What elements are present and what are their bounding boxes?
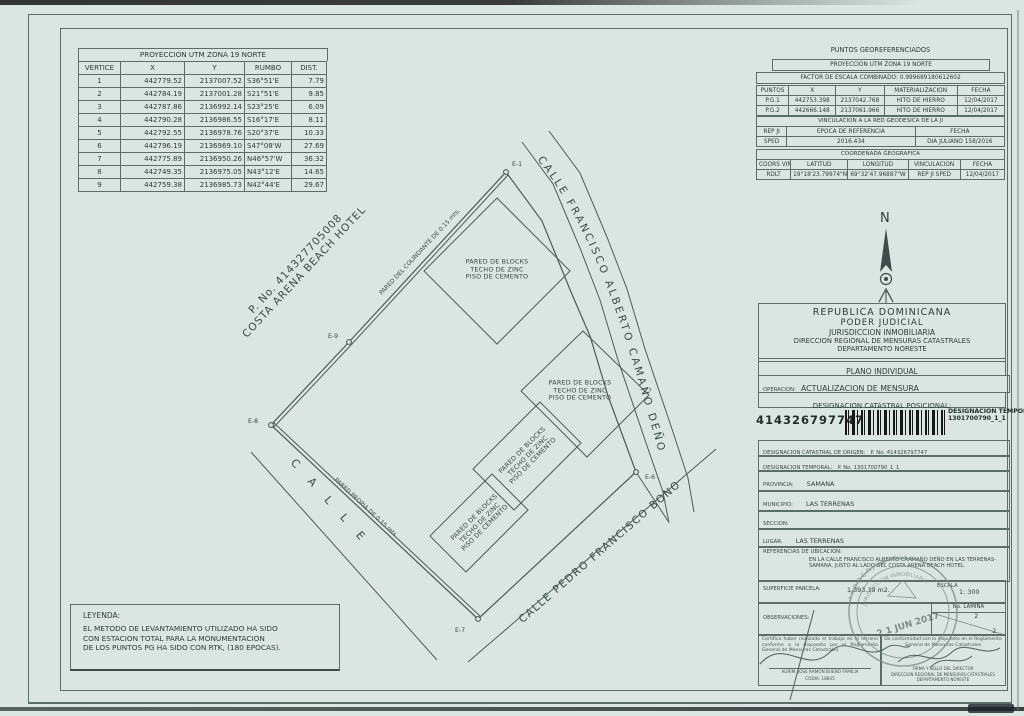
table-cell: 2136950.26 xyxy=(185,153,245,166)
geo-points-table: PUNTOSXYMATERIALIZACIONFECHA P.G.1442753… xyxy=(756,85,1005,116)
header-line-5: DEPARTAMENTO NORESTE xyxy=(759,345,1005,353)
table-cell: 10.33 xyxy=(292,127,327,140)
observaciones-label: OBSERVACIONES: xyxy=(763,615,810,621)
header-line-1: REPUBLICA DOMINICANA xyxy=(759,307,1005,318)
geo-subtitle: PROYECCION UTM ZONA 19 NORTE xyxy=(772,59,990,71)
referencias-value: EN LA CALLE FRANCISCO ALBERTO CAAMAÑO DE… xyxy=(809,557,1003,570)
temporal-designation-block: DESIGNACION TEMPORAL 1301700790_1_1 xyxy=(948,408,1018,422)
provincia-value: SAMANA xyxy=(807,480,835,488)
cert-right-box: De conformidad con lo dispuesto en el Re… xyxy=(880,634,1006,686)
superficie-label: SUPERFICIE PARCELA: xyxy=(763,586,821,592)
table-cell: 442792.55 xyxy=(121,127,185,140)
table-cell: 442790.28 xyxy=(121,114,185,127)
lugar-value: LAS TERRENAS xyxy=(796,537,844,545)
table-cell: 5 xyxy=(79,127,121,140)
utm-vertex-table: VERTICEXYRUMBODIST. 1442779.522137007.52… xyxy=(78,61,327,192)
table-cell: 2136986.55 xyxy=(185,114,245,127)
table-cell: P.G.1 xyxy=(757,96,789,106)
table-cell: 442759.38 xyxy=(121,179,185,192)
column-header: LONGITUD xyxy=(848,160,908,170)
cert-right-line3: DEPARTAMENTO NORESTE xyxy=(881,677,1005,683)
scanned-survey-plan: PROYECCION UTM ZONA 19 NORTE VERTICEXYRU… xyxy=(0,0,1024,716)
utm-header-row: VERTICEXYRUMBODIST. xyxy=(79,62,327,75)
table-cell: 2137042.768 xyxy=(836,96,884,106)
cert-left-name: AGRIM. JOSE RAMON BUENO FAMILIA xyxy=(769,668,871,675)
table-cell: 7.79 xyxy=(292,75,327,88)
lamina-diagonal: 2 2 xyxy=(932,613,1005,635)
column-header: COORS VINCULADA xyxy=(757,160,791,170)
table-cell: N42°44'E xyxy=(245,179,292,192)
scan-edge-bottom xyxy=(0,707,1024,711)
building-label-2: PARED DE BLOCKS TECHO DE ZINC PISO DE CE… xyxy=(549,380,612,403)
legend-box: LEYENDA: EL METODO DE LEVANTAMIENTO UTIL… xyxy=(70,604,340,671)
cert-right-text: De conformidad con lo dispuesto en el Re… xyxy=(881,635,1005,648)
geo-vinc-header-row: REP JIEPOCA DE REFERENCIAFECHA xyxy=(757,127,1005,137)
table-cell: S16°17'E xyxy=(245,114,292,127)
table-cell: S23°25'E xyxy=(245,101,292,114)
table-cell: 12/04/2017 xyxy=(957,96,1004,106)
seccion-label: SECCION: xyxy=(763,521,789,527)
table-cell: 3 xyxy=(79,101,121,114)
referencias-label: REFERENCIAS DE UBICACION: xyxy=(763,549,1009,555)
column-header: Y xyxy=(836,86,884,96)
table-cell: 442749.35 xyxy=(121,166,185,179)
geo-coord-header-row: COORS VINCULADALATITUDLONGITUDVINCULACIO… xyxy=(757,160,1005,170)
table-cell: 12/04/2017 xyxy=(960,170,1004,180)
table-row: P.G.2442666.1482137061.966HITO DE HIERRO… xyxy=(757,106,1005,116)
table-row: 9442759.382136985.73N42°44'E29.67 xyxy=(79,179,327,192)
table-cell: 442796.19 xyxy=(121,140,185,153)
column-header: EPOCA DE REFERENCIA xyxy=(787,127,916,137)
table-row: 7442775.892136950.26N46°57'W36.32 xyxy=(79,153,327,166)
scan-edge-top xyxy=(0,0,1024,5)
table-cell: 2136975.05 xyxy=(185,166,245,179)
table-cell: 2136978.76 xyxy=(185,127,245,140)
geo-points-header-row: PUNTOSXYMATERIALIZACIONFECHA xyxy=(757,86,1005,96)
table-row: P.G.1442753.3982137042.768HITO DE HIERRO… xyxy=(757,96,1005,106)
escala-label: ESCALA xyxy=(937,583,958,589)
table-cell: 1 xyxy=(79,75,121,88)
geo-vinc-table: REP JIEPOCA DE REFERENCIAFECHA SPED2016.… xyxy=(756,126,1005,147)
legend-title: LEYENDA: xyxy=(83,611,339,620)
cert-left-box: Certifica haber realizado el trabajo en … xyxy=(758,634,882,686)
table-cell: 6 xyxy=(79,140,121,153)
table-row: 2442784.192137001.28S21°51'E9.85 xyxy=(79,88,327,101)
table-cell: N43°12'E xyxy=(245,166,292,179)
table-row: 5442792.552136978.76S20°37'E10.33 xyxy=(79,127,327,140)
column-header: FECHA xyxy=(960,160,1004,170)
table-cell: 442753.398 xyxy=(789,96,836,106)
column-header: MATERIALIZACION xyxy=(884,86,957,96)
table-cell: 2136985.73 xyxy=(185,179,245,192)
building-label-1: PARED DE BLOCKS TECHO DE ZINC PISO DE CE… xyxy=(466,259,529,282)
column-header: X xyxy=(121,62,185,75)
utm-table: PROYECCION UTM ZONA 19 NORTE VERTICEXYRU… xyxy=(78,48,326,192)
column-header: RUMBO xyxy=(245,62,292,75)
building-2-line3: PISO DE CEMENTO xyxy=(549,395,612,403)
legend-line-3: DE LOS PUNTOS PG HA SIDO CON RTK, (180 E… xyxy=(83,643,339,653)
table-row: RDLT19°18'23.79974"N69°32'47.96887"WREP … xyxy=(757,170,1005,180)
geo-title: PUNTOS GEOREFERENCIADOS xyxy=(756,46,1005,54)
panel-plano-row: PLANO INDIVIDUAL xyxy=(758,358,1006,376)
field-referencias: REFERENCIAS DE UBICACION: EN LA CALLE FR… xyxy=(758,546,1010,582)
table-cell: 8.11 xyxy=(292,114,327,127)
column-header: X xyxy=(789,86,836,96)
field-observaciones: OBSERVACIONES: No. LAMINA 2 2 xyxy=(758,602,1006,636)
table-cell: SPED xyxy=(757,137,787,147)
provincia-label: PROVINCIA: xyxy=(763,482,794,488)
table-cell: 9.85 xyxy=(292,88,327,101)
cert-left-codia: CODIA: 18845 xyxy=(759,676,881,682)
escala-value: 1: 300 xyxy=(959,588,979,596)
table-row: SPED2016.434DIA JULIANO 158/2016 xyxy=(757,137,1005,147)
table-row: 8442749.352136975.05N43°12'E14.65 xyxy=(79,166,327,179)
designacion-title: DESIGNACION CATASTRAL POSICIONAL: xyxy=(813,402,951,410)
table-cell: 2136992.14 xyxy=(185,101,245,114)
table-row: 4442790.282136986.55S16°17'E8.11 xyxy=(79,114,327,127)
table-cell: 442787.86 xyxy=(121,101,185,114)
column-header: DIST. xyxy=(292,62,327,75)
field-lugar: LUGAR: LAS TERRENAS xyxy=(758,528,1010,548)
panel-designacion-row: DESIGNACION CATASTRAL POSICIONAL: xyxy=(758,392,1006,408)
lugar-label: LUGAR: xyxy=(763,539,783,545)
table-cell: 6.09 xyxy=(292,101,327,114)
superficie-value: 1,393.39 m2. xyxy=(847,586,890,594)
table-row: 6442796.192136969.10S47°08'W27.69 xyxy=(79,140,327,153)
temporal-value: 1301700790_1_1 xyxy=(948,415,1018,422)
table-cell: 4 xyxy=(79,114,121,127)
table-cell: HITO DE HIERRO xyxy=(884,96,957,106)
table-cell: S21°51'E xyxy=(245,88,292,101)
column-header: FECHA xyxy=(957,86,1004,96)
table-cell: 2137007.52 xyxy=(185,75,245,88)
table-cell: 36.32 xyxy=(292,153,327,166)
panel-operacion-row: OPERACION: ACTUALIZACION DE MENSURA xyxy=(758,375,1010,393)
table-cell: 442666.148 xyxy=(789,106,836,116)
table-cell: REP JI SPED xyxy=(908,170,960,180)
table-cell: 442784.19 xyxy=(121,88,185,101)
table-cell: 2016.434 xyxy=(787,137,916,147)
table-cell: 2137061.966 xyxy=(836,106,884,116)
geo-factor: FACTOR DE ESCALA COMBINADO: 0.9996891806… xyxy=(756,72,1005,84)
table-cell: 29.67 xyxy=(292,179,327,192)
table-cell: 19°18'23.79974"N xyxy=(791,170,848,180)
table-cell: 2136969.10 xyxy=(185,140,245,153)
field-seccion: SECCION: xyxy=(758,510,1010,530)
municipio-label: MUNICIPIO: xyxy=(763,502,793,508)
table-cell: 69°32'47.96887"W xyxy=(848,170,908,180)
table-row: 1442779.522137007.52S36°51'E7.79 xyxy=(79,75,327,88)
geo-coord-table: COORS VINCULADALATITUDLONGITUDVINCULACIO… xyxy=(756,159,1005,180)
header-line-3: JURISDICCION INMOBILIARIA xyxy=(759,328,1005,337)
table-cell: 27.69 xyxy=(292,140,327,153)
column-header: Y xyxy=(185,62,245,75)
column-header: FECHA xyxy=(915,127,1004,137)
cert-right-footer: FIRMA Y SELLO DEL DIRECTOR DIRECCION REG… xyxy=(881,666,1005,683)
column-header: LATITUD xyxy=(791,160,848,170)
table-cell: 442775.89 xyxy=(121,153,185,166)
scan-edge-right xyxy=(1017,10,1019,710)
header-line-2: PODER JUDICIAL xyxy=(759,318,1005,328)
table-cell: DIA JULIANO 158/2016 xyxy=(915,137,1004,147)
legend-line-2: CON ESTACION TOTAL PARA LA MONUMENTACION xyxy=(83,634,339,644)
table-cell: 2137001.28 xyxy=(185,88,245,101)
temporal-label: DESIGNACION TEMPORAL xyxy=(948,408,1018,415)
column-header: PUNTOS xyxy=(757,86,789,96)
table-cell: S36°51'E xyxy=(245,75,292,88)
header-line-4: DIRECCION REGIONAL DE MENSURAS CATASTRAL… xyxy=(759,337,1005,345)
table-cell: 442779.52 xyxy=(121,75,185,88)
utm-table-title: PROYECCION UTM ZONA 19 NORTE xyxy=(78,48,328,61)
building-1-line3: PISO DE CEMENTO xyxy=(466,274,529,282)
field-superficie: SUPERFICIE PARCELA: 1,393.39 m2. ESCALA … xyxy=(758,580,1006,604)
table-row: 3442787.862136992.14S23°25'E6.09 xyxy=(79,101,327,114)
lamina-label: No. LAMINA xyxy=(932,602,1005,613)
barcode xyxy=(845,410,945,435)
table-cell: 7 xyxy=(79,153,121,166)
cert-left-text: Certifica haber realizado el trabajo en … xyxy=(759,635,881,654)
scan-corner-mark xyxy=(968,704,1014,713)
table-cell: 2 xyxy=(79,88,121,101)
table-cell: HITO DE HIERRO xyxy=(884,106,957,116)
table-cell: S20°37'E xyxy=(245,127,292,140)
table-cell: 9 xyxy=(79,179,121,192)
table-cell: RDLT xyxy=(757,170,791,180)
panel-header-block: REPUBLICA DOMINICANA PODER JUDICIAL JURI… xyxy=(758,303,1006,362)
table-cell: S47°08'W xyxy=(245,140,292,153)
field-provincia: PROVINCIA: SAMANA xyxy=(758,470,1010,492)
column-header: VERTICE xyxy=(79,62,121,75)
column-header: VINCULACION xyxy=(908,160,960,170)
table-cell: 12/04/2017 xyxy=(957,106,1004,116)
table-cell: N46°57'W xyxy=(245,153,292,166)
column-header: REP JI xyxy=(757,127,787,137)
legend-line-1: EL METODO DE LEVANTAMIENTO UTILIZADO HA … xyxy=(83,624,339,634)
table-cell: 8 xyxy=(79,166,121,179)
field-municipio: MUNICIPIO: LAS TERRENAS xyxy=(758,490,1010,512)
lamina-top-value: 2 xyxy=(974,613,978,620)
table-cell: P.G.2 xyxy=(757,106,789,116)
table-cell: 14.65 xyxy=(292,166,327,179)
lamina-cell: No. LAMINA 2 2 xyxy=(931,602,1005,635)
municipio-value: LAS TERRENAS xyxy=(806,500,854,508)
